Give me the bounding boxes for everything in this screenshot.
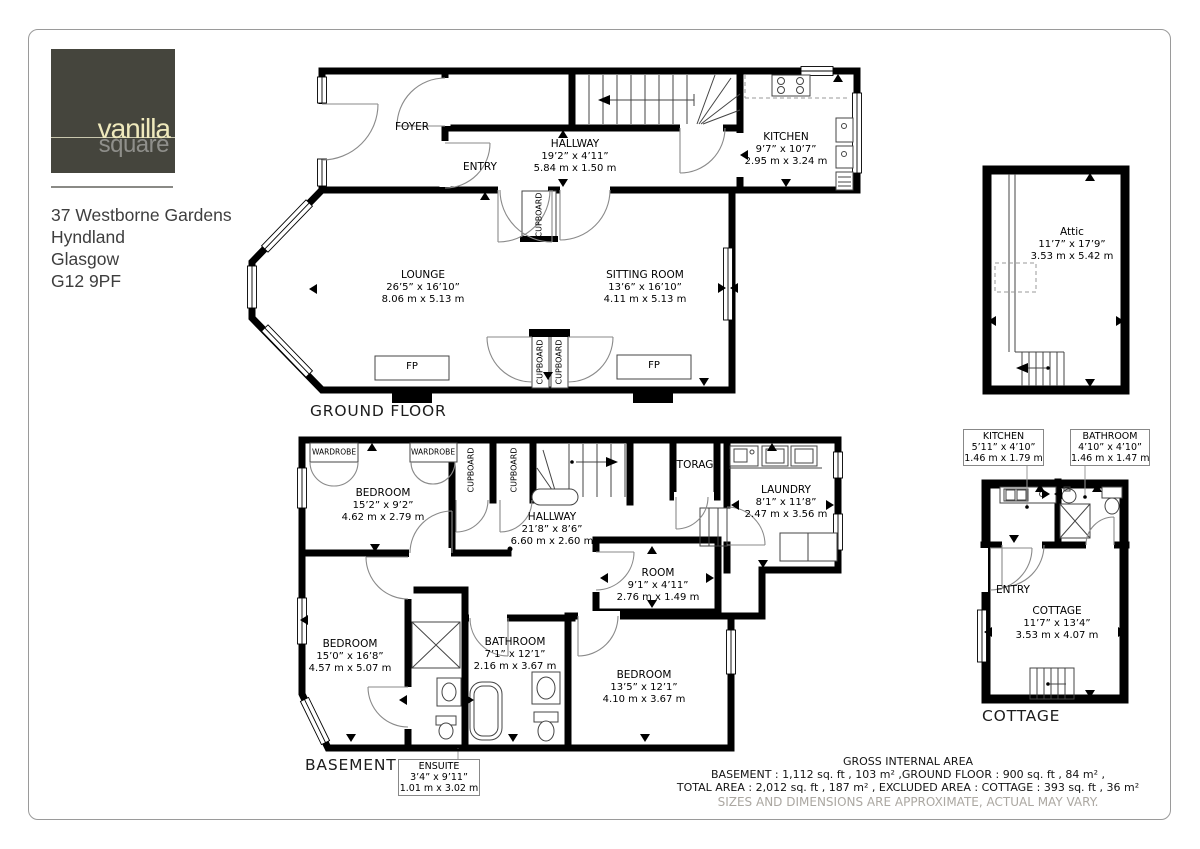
attic-plan <box>987 170 1125 390</box>
room-name: LOUNGE <box>382 269 465 282</box>
area-summary-line2: TOTAL AREA : 2,012 sq. ft , 187 m² , EXC… <box>677 781 1139 794</box>
direction-markers <box>309 74 843 386</box>
room-dims-metric: 5.84 m x 1.50 m <box>534 163 617 176</box>
room-dims-imperial: 3’4” x 9’11” <box>399 772 479 783</box>
room-label-bedroom2: BEDROOM 15’0” x 16’8” 4.57 m x 5.07 m <box>309 638 392 676</box>
cupboard-label-vertical: CUPBOARD <box>535 193 544 238</box>
cupboard-label-vertical: CUPBOARD <box>536 340 545 385</box>
area-summary-line1: BASEMENT : 1,112 sq. ft , 103 m² ,GROUND… <box>711 768 1105 781</box>
cottage-plan <box>976 462 1126 699</box>
floorplan-page: vanilla square 37 Westborne Gardens Hynd… <box>0 0 1200 849</box>
room-label-entry-cottage: ENTRY <box>996 584 1030 597</box>
room-name: HALLWAY <box>511 511 594 524</box>
room-label-bedroom3: BEDROOM 13’5” x 12’1” 4.10 m x 3.67 m <box>603 669 686 707</box>
room-dims-metric: 4.62 m x 2.79 m <box>342 512 425 525</box>
fireplace-abbr: FP <box>406 361 418 374</box>
room-name: BATHROOM <box>474 636 557 649</box>
ct-bathroom-fixtures <box>1060 487 1122 538</box>
room-label-cottage: COTTAGE 11’7” x 13’4” 3.53 m x 4.07 m <box>1016 605 1099 643</box>
room-dims-metric: 1.46 m x 1.47 m <box>1071 453 1149 464</box>
wardrobe-label: WARDROBE <box>411 448 455 457</box>
room-dims-metric: 2.16 m x 3.67 m <box>474 661 557 674</box>
room-dims-metric: 3.53 m x 5.42 m <box>1031 251 1114 264</box>
room-label-bedroom1: BEDROOM 15’2” x 9’2” 4.62 m x 2.79 m <box>342 487 425 525</box>
room-dims-imperial: 15’0” x 16’8” <box>309 651 392 664</box>
room-dims-metric: 6.60 m x 2.60 m <box>511 536 594 549</box>
room-name: Attic <box>1031 226 1114 239</box>
gf-staircase <box>589 75 740 124</box>
room-label-laundry: LAUNDRY 8’1” x 11’8” 2.47 m x 3.56 m <box>745 484 828 522</box>
bm-staircase <box>532 444 625 505</box>
room-name: SITTING ROOM <box>604 269 687 282</box>
cupboard-label-vertical: CUPBOARD <box>467 448 476 493</box>
room-name: COTTAGE <box>1016 605 1099 618</box>
bm-bathroom-fixtures <box>470 672 560 741</box>
door-arc <box>990 517 1114 590</box>
callout-ensuite: ENSUITE 3’4” x 9’11” 1.01 m x 3.02 m <box>398 759 480 796</box>
room-name: KITCHEN <box>745 131 828 144</box>
cupboard-label-vertical: CUPBOARD <box>510 448 519 493</box>
room-name: ENSUITE <box>399 761 479 772</box>
fireplace-label: FP <box>406 361 418 374</box>
room-dims-metric: 2.95 m x 3.24 m <box>745 156 828 169</box>
room-dims-imperial: 9’7” x 10’7” <box>745 144 828 157</box>
cupboard-label-vertical: CUPBOARD <box>555 340 564 385</box>
attic-staircase <box>1016 352 1057 386</box>
room-dims-metric: 2.47 m x 3.56 m <box>745 509 828 522</box>
bm-ensuite-fixtures <box>412 622 461 739</box>
room-label-storage: STORAGE <box>670 459 720 472</box>
room-dims-metric: 4.11 m x 5.13 m <box>604 294 687 307</box>
room-name: HALLWAY <box>534 138 617 151</box>
room-dims-metric: 1.01 m x 3.02 m <box>399 783 479 794</box>
room-dims-metric: 1.46 m x 1.79 m <box>964 453 1043 464</box>
room-label-lounge: LOUNGE 26’5” x 16’10” 8.06 m x 5.13 m <box>382 269 465 307</box>
room-dims-imperial: 11’7” x 13’4” <box>1016 618 1099 631</box>
room-label-foyer: FOYER <box>395 121 429 134</box>
room-name: LAUNDRY <box>745 484 828 497</box>
room-dims-imperial: 13’5” x 12’1” <box>603 682 686 695</box>
room-dims-imperial: 4’10” x 4’10” <box>1071 442 1149 453</box>
attic-outer-walls <box>987 170 1125 390</box>
room-dims-imperial: 13’6” x 16’10” <box>604 282 687 295</box>
fireplace-label: FP <box>648 360 660 373</box>
room-dims-metric: 2.76 m x 1.49 m <box>617 592 700 605</box>
room-dims-imperial: 26’5” x 16’10” <box>382 282 465 295</box>
room-label-entry-gf: ENTRY <box>463 161 497 174</box>
room-dims-imperial: 21’8” x 8’6” <box>511 524 594 537</box>
callout-cottage-bathroom: BATHROOM 4’10” x 4’10” 1.46 m x 1.47 m <box>1070 429 1150 466</box>
room-label-bathroom-bm: BATHROOM 7’1” x 12’1” 2.16 m x 3.67 m <box>474 636 557 674</box>
room-dims-metric: 3.53 m x 4.07 m <box>1016 630 1099 643</box>
floor-title-ground: GROUND FLOOR <box>310 402 447 420</box>
room-name: BEDROOM <box>603 669 686 682</box>
room-name: ENTRY <box>996 584 1030 597</box>
gross-internal-area-title: GROSS INTERNAL AREA <box>843 755 973 768</box>
room-name: FOYER <box>395 121 429 134</box>
room-name: KITCHEN <box>964 431 1043 442</box>
room-label-hallway-bm: HALLWAY 21’8” x 8’6” 6.60 m x 2.60 m <box>511 511 594 549</box>
disclaimer: SIZES AND DIMENSIONS ARE APPROXIMATE, AC… <box>718 795 1099 809</box>
room-dims-metric: 8.06 m x 5.13 m <box>382 294 465 307</box>
room-dims-imperial: 11’7” x 17’9” <box>1031 239 1114 252</box>
direction-markers <box>988 173 1124 387</box>
room-name: BEDROOM <box>309 638 392 651</box>
fireplace-abbr: FP <box>648 360 660 373</box>
room-name: BEDROOM <box>342 487 425 500</box>
room-dims-imperial: 15’2” x 9’2” <box>342 500 425 513</box>
floor-title-basement: BASEMENT <box>305 756 397 774</box>
room-dims-imperial: 7’1” x 12’1” <box>474 649 557 662</box>
room-dims-imperial: 19’2” x 4’11” <box>534 151 617 164</box>
room-name: ROOM <box>617 567 700 580</box>
room-dims-imperial: 9’1” x 4’11” <box>617 580 700 593</box>
room-label-room: ROOM 9’1” x 4’11” 2.76 m x 1.49 m <box>617 567 700 605</box>
room-name: STORAGE <box>670 459 720 472</box>
floor-title-cottage: COTTAGE <box>982 707 1060 725</box>
wardrobe-label: WARDROBE <box>312 448 356 457</box>
room-label-attic: Attic 11’7” x 17’9” 3.53 m x 5.42 m <box>1031 226 1114 264</box>
callout-cottage-kitchen: KITCHEN 5’11” x 4’10” 1.46 m x 1.79 m <box>963 429 1044 466</box>
ct-staircase <box>1030 668 1074 699</box>
room-label-hallway-gf: HALLWAY 19’2” x 4’11” 5.84 m x 1.50 m <box>534 138 617 176</box>
room-label-kitchen-gf: KITCHEN 9’7” x 10’7” 2.95 m x 3.24 m <box>745 131 828 169</box>
room-label-sitting-room: SITTING ROOM 13’6” x 16’10” 4.11 m x 5.1… <box>604 269 687 307</box>
room-dims-metric: 4.10 m x 3.67 m <box>603 694 686 707</box>
room-dims-imperial: 5’11” x 4’10” <box>964 442 1043 453</box>
room-dims-imperial: 8’1” x 11’8” <box>745 497 828 510</box>
room-name: BATHROOM <box>1071 431 1149 442</box>
room-dims-metric: 4.57 m x 5.07 m <box>309 663 392 676</box>
room-name: ENTRY <box>463 161 497 174</box>
